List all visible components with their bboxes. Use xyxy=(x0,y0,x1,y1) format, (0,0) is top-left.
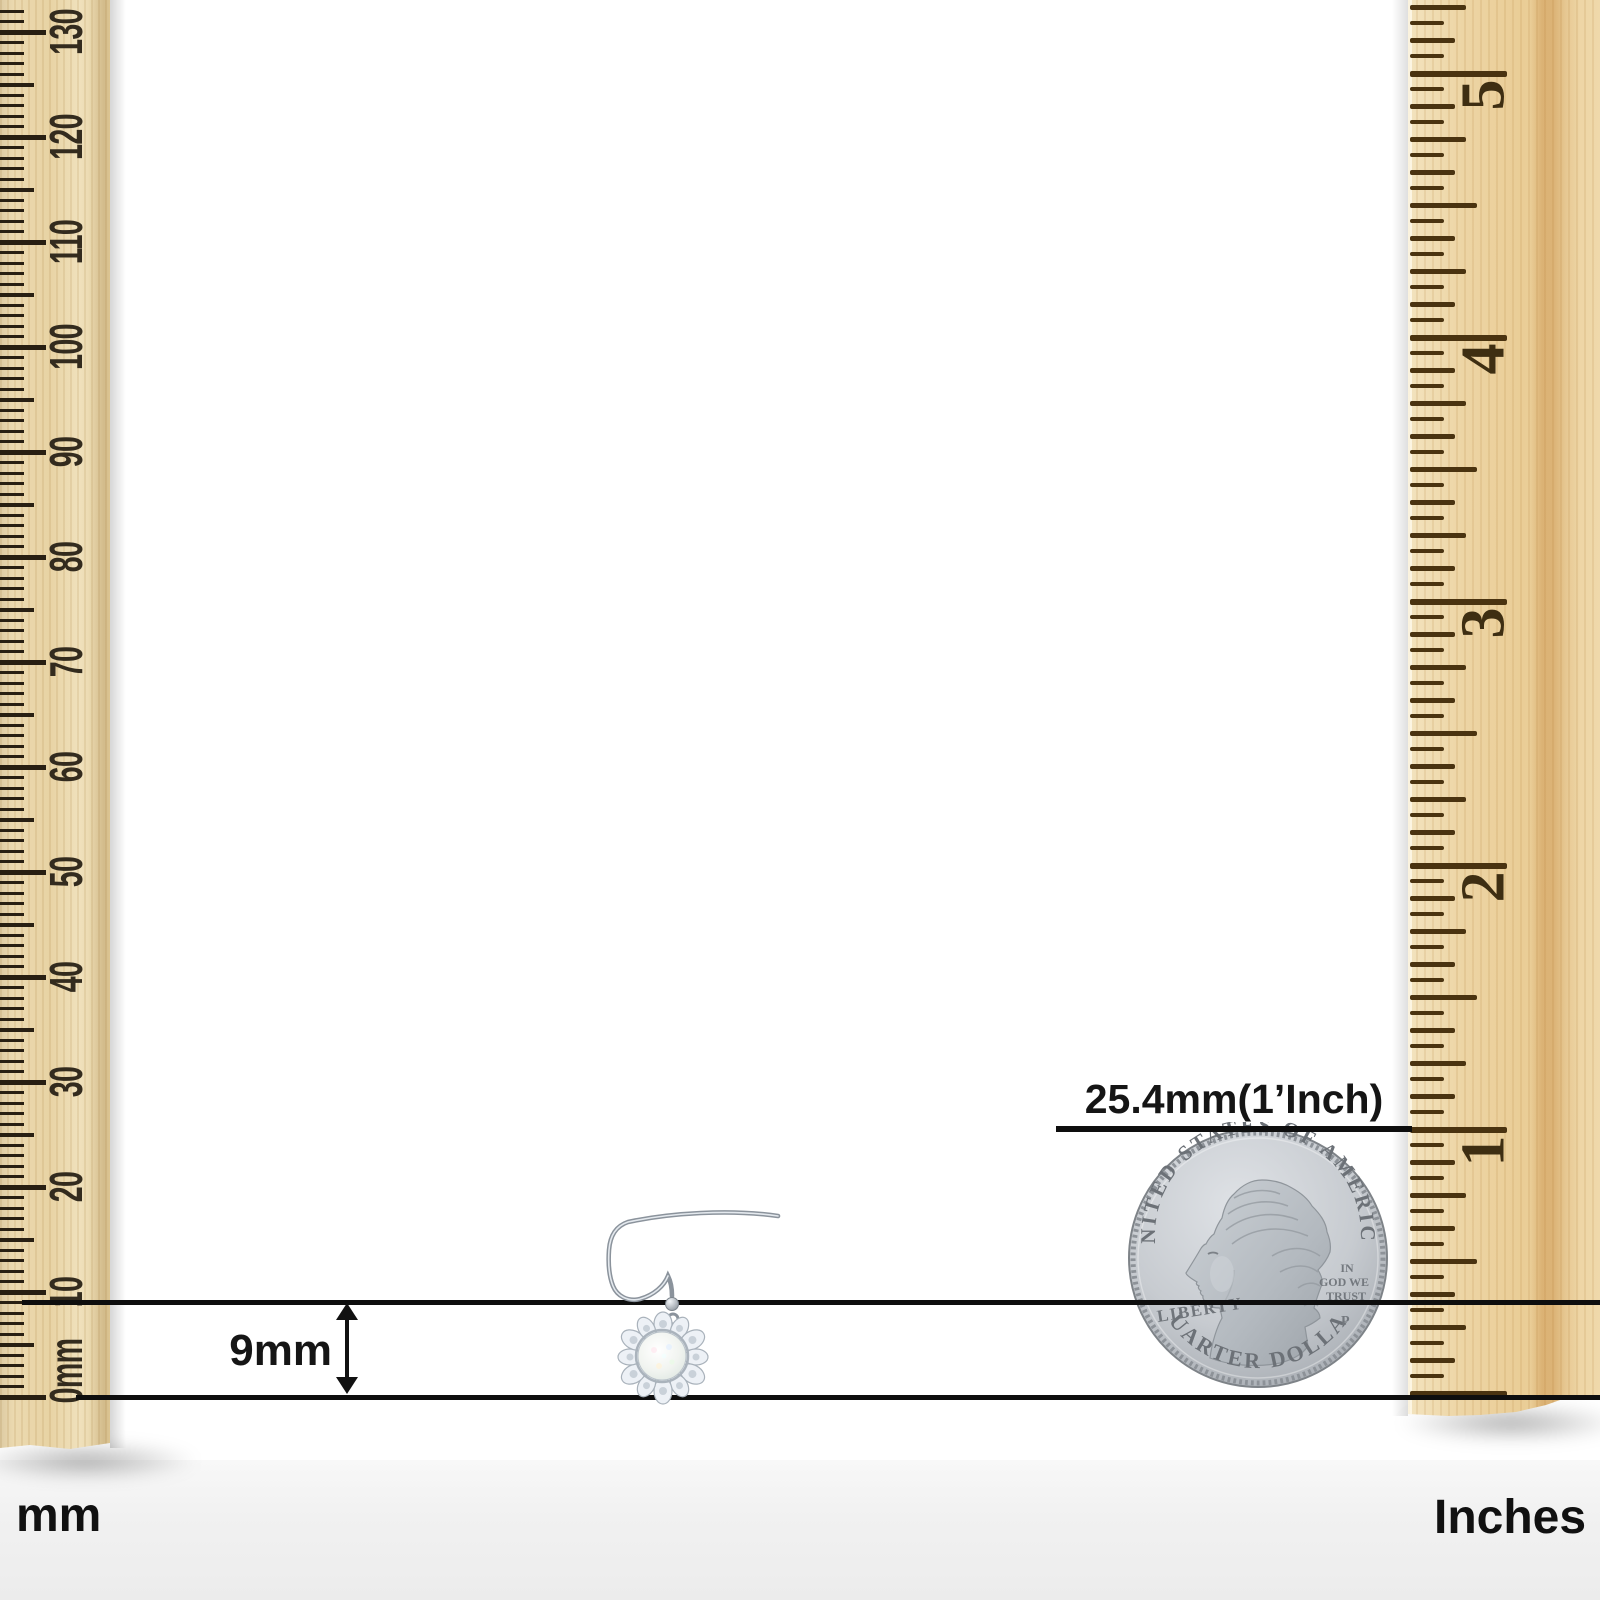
earring-hook-wire xyxy=(609,1212,778,1299)
mm-tick-126 xyxy=(0,73,24,76)
mm-tick-43 xyxy=(0,944,24,947)
inch-ruler-number-4: 4 xyxy=(1449,344,1520,375)
mm-tick-44 xyxy=(0,934,24,937)
mm-tick-15 xyxy=(0,1238,34,1242)
inch-ruler-number-3: 3 xyxy=(1449,608,1520,639)
mm-tick-25 xyxy=(0,1133,34,1137)
mm-tick-93 xyxy=(0,419,24,422)
mm-tick-132 xyxy=(0,10,24,13)
inch-tick-66 xyxy=(1410,302,1455,307)
inch-tick-41 xyxy=(1410,714,1444,718)
inch-tick-35 xyxy=(1410,813,1444,817)
inch-tick-67 xyxy=(1410,285,1444,289)
mm-ruler-number-40: 40 xyxy=(39,962,93,992)
inch-tick-34 xyxy=(1410,830,1455,835)
mm-tick-3 xyxy=(0,1364,24,1367)
mm-ruler-number-130: 130 xyxy=(39,9,93,55)
inch-tick-25 xyxy=(1410,978,1444,982)
inch-tick-83 xyxy=(1410,21,1444,25)
right-ruler: 12345 xyxy=(1408,0,1600,1418)
mm-tick-88 xyxy=(0,472,24,475)
mm-tick-106 xyxy=(0,283,24,286)
mm-tick-41 xyxy=(0,965,24,968)
mm-tick-104 xyxy=(0,304,24,307)
inch-tick-70 xyxy=(1410,236,1455,241)
inch-tick-26 xyxy=(1410,962,1455,967)
inch-tick-76 xyxy=(1410,137,1466,142)
mm-tick-57 xyxy=(0,797,24,800)
inch-tick-19 xyxy=(1410,1077,1444,1081)
mm-tick-14 xyxy=(0,1249,24,1252)
mm-tick-33 xyxy=(0,1049,24,1052)
mm-tick-31 xyxy=(0,1070,24,1073)
mm-tick-29 xyxy=(0,1091,24,1094)
mm-ruler-number-90: 90 xyxy=(39,437,93,467)
inch-tick-51 xyxy=(1410,549,1444,553)
mm-tick-77 xyxy=(0,587,24,590)
mm-tick-103 xyxy=(0,314,24,317)
mm-tick-109 xyxy=(0,251,24,254)
coin-size-label: 25.4mm(1’Inch) xyxy=(1058,1076,1410,1123)
mm-tick-6 xyxy=(0,1333,24,1336)
mm-tick-72 xyxy=(0,640,24,643)
mm-ruler-number-60: 60 xyxy=(39,752,93,782)
inch-tick-65 xyxy=(1410,318,1444,322)
mm-tick-58 xyxy=(0,787,24,790)
mm-tick-51 xyxy=(0,860,24,863)
mm-tick-112 xyxy=(0,220,24,223)
inch-tick-40 xyxy=(1410,731,1477,736)
inch-tick-29 xyxy=(1410,912,1444,916)
mm-tick-62 xyxy=(0,745,24,748)
inch-tick-72 xyxy=(1410,203,1477,208)
inch-tick-61 xyxy=(1410,384,1444,388)
mm-ruler-number-50: 50 xyxy=(39,857,93,887)
arrow-shaft xyxy=(345,1312,349,1385)
size-comparison-image: 0mm102030405060708090100110120130 12345 xyxy=(0,0,1600,1600)
right-ruler-edge-shadow xyxy=(1392,0,1408,1416)
mm-tick-48 xyxy=(0,892,24,895)
inch-tick-4 xyxy=(1410,1325,1466,1330)
inch-ruler-number-2: 2 xyxy=(1449,872,1520,903)
measure-line-bottom xyxy=(76,1395,1600,1400)
floor-background xyxy=(0,1460,1600,1600)
inch-tick-17 xyxy=(1410,1110,1444,1114)
mm-tick-16 xyxy=(0,1228,24,1231)
mm-tick-79 xyxy=(0,566,24,569)
mm-tick-125 xyxy=(0,83,34,87)
mm-tick-21 xyxy=(0,1175,24,1178)
left-ruler: 0mm102030405060708090100110120130 xyxy=(0,0,110,1450)
mm-tick-122 xyxy=(0,115,24,118)
inch-tick-82 xyxy=(1410,38,1455,43)
mm-tick-97 xyxy=(0,377,24,380)
inch-tick-13 xyxy=(1410,1176,1444,1180)
inch-tick-27 xyxy=(1410,945,1444,949)
mm-tick-116 xyxy=(0,178,24,181)
mm-tick-108 xyxy=(0,262,24,265)
mm-tick-114 xyxy=(0,199,24,202)
svg-text:IN: IN xyxy=(1340,1261,1354,1275)
mm-ruler-number-30: 30 xyxy=(39,1067,93,1097)
inch-tick-79 xyxy=(1410,87,1444,91)
mm-tick-98 xyxy=(0,367,24,370)
earring-image xyxy=(580,1180,810,1415)
mm-tick-128 xyxy=(0,52,24,55)
mm-tick-75 xyxy=(0,608,34,612)
inch-tick-73 xyxy=(1410,186,1444,190)
mm-tick-52 xyxy=(0,850,24,853)
left-ruler-edge-shadow xyxy=(110,0,126,1448)
mm-tick-13 xyxy=(0,1259,24,1262)
mm-tick-64 xyxy=(0,724,24,727)
mm-tick-101 xyxy=(0,335,24,338)
inch-tick-60 xyxy=(1410,401,1466,406)
mm-tick-99 xyxy=(0,356,24,359)
mm-tick-4 xyxy=(0,1354,24,1357)
mm-tick-53 xyxy=(0,839,24,842)
mm-tick-127 xyxy=(0,62,24,65)
coin-mint-mark: P xyxy=(1341,1314,1350,1329)
mm-tick-42 xyxy=(0,955,24,958)
mm-tick-24 xyxy=(0,1144,24,1147)
inch-tick-45 xyxy=(1410,648,1444,652)
mm-tick-23 xyxy=(0,1154,24,1157)
mm-tick-96 xyxy=(0,388,24,391)
mm-tick-73 xyxy=(0,629,24,632)
mm-tick-65 xyxy=(0,713,34,717)
inch-tick-47 xyxy=(1410,615,1444,619)
inch-tick-18 xyxy=(1410,1094,1455,1099)
mm-tick-117 xyxy=(0,167,24,170)
mm-tick-105 xyxy=(0,293,34,297)
inch-tick-63 xyxy=(1410,351,1444,355)
inch-tick-21 xyxy=(1410,1044,1444,1048)
mm-tick-32 xyxy=(0,1060,24,1063)
svg-text:GOD WE: GOD WE xyxy=(1319,1275,1369,1289)
inch-tick-15 xyxy=(1410,1143,1444,1147)
inch-tick-64 xyxy=(1410,335,1507,341)
mm-tick-83 xyxy=(0,524,24,527)
mm-tick-121 xyxy=(0,125,24,128)
unit-label-mm: mm xyxy=(16,1488,101,1543)
mm-tick-69 xyxy=(0,671,24,674)
measure-line-top xyxy=(22,1300,1600,1305)
mm-ruler-number-20: 20 xyxy=(39,1172,93,1202)
inch-ruler-number-5: 5 xyxy=(1449,80,1520,111)
inch-tick-5 xyxy=(1410,1308,1444,1312)
mm-ruler-number-120: 120 xyxy=(39,114,93,160)
inch-tick-28 xyxy=(1410,929,1466,934)
mm-ruler-number-110: 110 xyxy=(39,220,93,264)
inch-tick-32 xyxy=(1410,863,1507,869)
inch-tick-39 xyxy=(1410,747,1444,751)
mm-tick-84 xyxy=(0,514,24,517)
inch-tick-9 xyxy=(1410,1242,1444,1246)
mm-tick-78 xyxy=(0,577,24,580)
mm-tick-54 xyxy=(0,829,24,832)
inch-tick-37 xyxy=(1410,780,1444,784)
mm-tick-27 xyxy=(0,1112,24,1115)
mm-tick-17 xyxy=(0,1217,24,1220)
mm-tick-22 xyxy=(0,1165,24,1168)
inch-tick-54 xyxy=(1410,500,1455,505)
mm-tick-119 xyxy=(0,146,24,149)
mm-tick-85 xyxy=(0,503,34,507)
mm-tick-113 xyxy=(0,209,24,212)
mm-tick-59 xyxy=(0,776,24,779)
mm-tick-9 xyxy=(0,1301,24,1304)
mm-tick-49 xyxy=(0,881,24,884)
inch-tick-12 xyxy=(1410,1193,1466,1198)
mm-tick-2 xyxy=(0,1375,24,1378)
inch-tick-74 xyxy=(1410,170,1455,175)
inch-tick-84 xyxy=(1410,5,1466,10)
mm-tick-89 xyxy=(0,461,24,464)
quarter-coin-image: UNITED STATES OF AMERICA QUARTER DOLLAR … xyxy=(1122,1122,1394,1394)
mm-tick-124 xyxy=(0,94,24,97)
inch-tick-16 xyxy=(1410,1127,1507,1133)
mm-tick-56 xyxy=(0,808,24,811)
mm-tick-118 xyxy=(0,157,24,160)
mm-tick-91 xyxy=(0,440,24,443)
inch-tick-36 xyxy=(1410,797,1466,802)
mm-tick-19 xyxy=(0,1196,24,1199)
mm-tick-86 xyxy=(0,493,24,496)
inch-tick-31 xyxy=(1410,879,1444,883)
earring-ball xyxy=(666,1298,679,1311)
inch-tick-59 xyxy=(1410,417,1444,421)
mm-tick-107 xyxy=(0,272,24,275)
inch-tick-57 xyxy=(1410,450,1444,454)
mm-tick-45 xyxy=(0,923,34,927)
mm-tick-39 xyxy=(0,986,24,989)
mm-tick-35 xyxy=(0,1028,34,1032)
coin-size-underline xyxy=(1056,1126,1412,1132)
mm-tick-46 xyxy=(0,913,24,916)
inch-tick-80 xyxy=(1410,71,1507,77)
inch-tick-7 xyxy=(1410,1275,1444,1279)
mm-tick-55 xyxy=(0,818,34,822)
earring-size-label: 9mm xyxy=(168,1325,332,1377)
mm-tick-92 xyxy=(0,430,24,433)
inch-tick-20 xyxy=(1410,1061,1466,1066)
mm-tick-123 xyxy=(0,104,24,107)
mm-tick-5 xyxy=(0,1343,34,1347)
inch-tick-42 xyxy=(1410,698,1455,703)
inch-tick-53 xyxy=(1410,516,1444,520)
inch-tick-23 xyxy=(1410,1011,1444,1015)
inch-tick-3 xyxy=(1410,1341,1444,1345)
mm-tick-94 xyxy=(0,409,24,412)
unit-label-inches: Inches xyxy=(1434,1490,1586,1545)
inch-tick-44 xyxy=(1410,665,1466,670)
inch-tick-48 xyxy=(1410,599,1507,605)
mm-tick-66 xyxy=(0,703,24,706)
arrow-down-icon xyxy=(336,1377,358,1394)
mm-tick-61 xyxy=(0,755,24,758)
mm-tick-67 xyxy=(0,692,24,695)
inch-tick-22 xyxy=(1410,1028,1455,1033)
mm-tick-81 xyxy=(0,545,24,548)
mm-tick-63 xyxy=(0,734,24,737)
inch-tick-1 xyxy=(1410,1374,1444,1378)
inch-tick-6 xyxy=(1410,1292,1455,1297)
inch-tick-50 xyxy=(1410,566,1455,571)
mm-tick-115 xyxy=(0,188,34,192)
mm-tick-76 xyxy=(0,598,24,601)
inch-tick-71 xyxy=(1410,219,1444,223)
inch-tick-10 xyxy=(1410,1226,1455,1231)
inch-tick-8 xyxy=(1410,1259,1477,1264)
inch-tick-55 xyxy=(1410,483,1444,487)
inch-tick-56 xyxy=(1410,467,1477,472)
mm-tick-111 xyxy=(0,230,24,233)
inch-tick-68 xyxy=(1410,269,1466,274)
mm-tick-7 xyxy=(0,1322,24,1325)
inch-tick-24 xyxy=(1410,995,1477,1000)
mm-tick-95 xyxy=(0,398,34,402)
mm-tick-8 xyxy=(0,1312,24,1315)
inch-tick-2 xyxy=(1410,1358,1455,1363)
mm-tick-28 xyxy=(0,1102,24,1105)
mm-tick-34 xyxy=(0,1039,24,1042)
mm-tick-82 xyxy=(0,535,24,538)
inch-tick-58 xyxy=(1410,434,1455,439)
mm-tick-68 xyxy=(0,682,24,685)
inch-ruler-number-1: 1 xyxy=(1449,1136,1520,1167)
mm-tick-38 xyxy=(0,997,24,1000)
mm-tick-36 xyxy=(0,1018,24,1021)
mm-tick-131 xyxy=(0,20,24,23)
inch-tick-43 xyxy=(1410,681,1444,685)
mm-tick-74 xyxy=(0,619,24,622)
left-ruler-shadow xyxy=(0,1442,200,1480)
size-arrow xyxy=(336,1303,358,1394)
inch-tick-38 xyxy=(1410,764,1455,769)
mm-ruler-number-0mm: 0mm xyxy=(39,1339,93,1404)
inch-tick-75 xyxy=(1410,153,1444,157)
mm-ruler-number-70: 70 xyxy=(39,647,93,677)
mm-ruler-number-80: 80 xyxy=(39,542,93,572)
inch-tick-52 xyxy=(1410,533,1466,538)
mm-tick-37 xyxy=(0,1007,24,1010)
mm-tick-12 xyxy=(0,1270,24,1273)
mm-ruler-number-100: 100 xyxy=(39,324,93,370)
mm-tick-71 xyxy=(0,650,24,653)
inch-tick-69 xyxy=(1410,252,1444,256)
mm-tick-102 xyxy=(0,325,24,328)
inch-tick-49 xyxy=(1410,582,1444,586)
mm-tick-47 xyxy=(0,902,24,905)
inch-tick-81 xyxy=(1410,54,1444,58)
mm-tick-129 xyxy=(0,41,24,44)
inch-tick-11 xyxy=(1410,1209,1444,1213)
inch-tick-77 xyxy=(1410,120,1444,124)
inch-tick-33 xyxy=(1410,846,1444,850)
mm-tick-26 xyxy=(0,1123,24,1126)
mm-tick-11 xyxy=(0,1280,24,1283)
mm-tick-87 xyxy=(0,482,24,485)
mm-tick-1 xyxy=(0,1385,24,1388)
mm-tick-18 xyxy=(0,1207,24,1210)
